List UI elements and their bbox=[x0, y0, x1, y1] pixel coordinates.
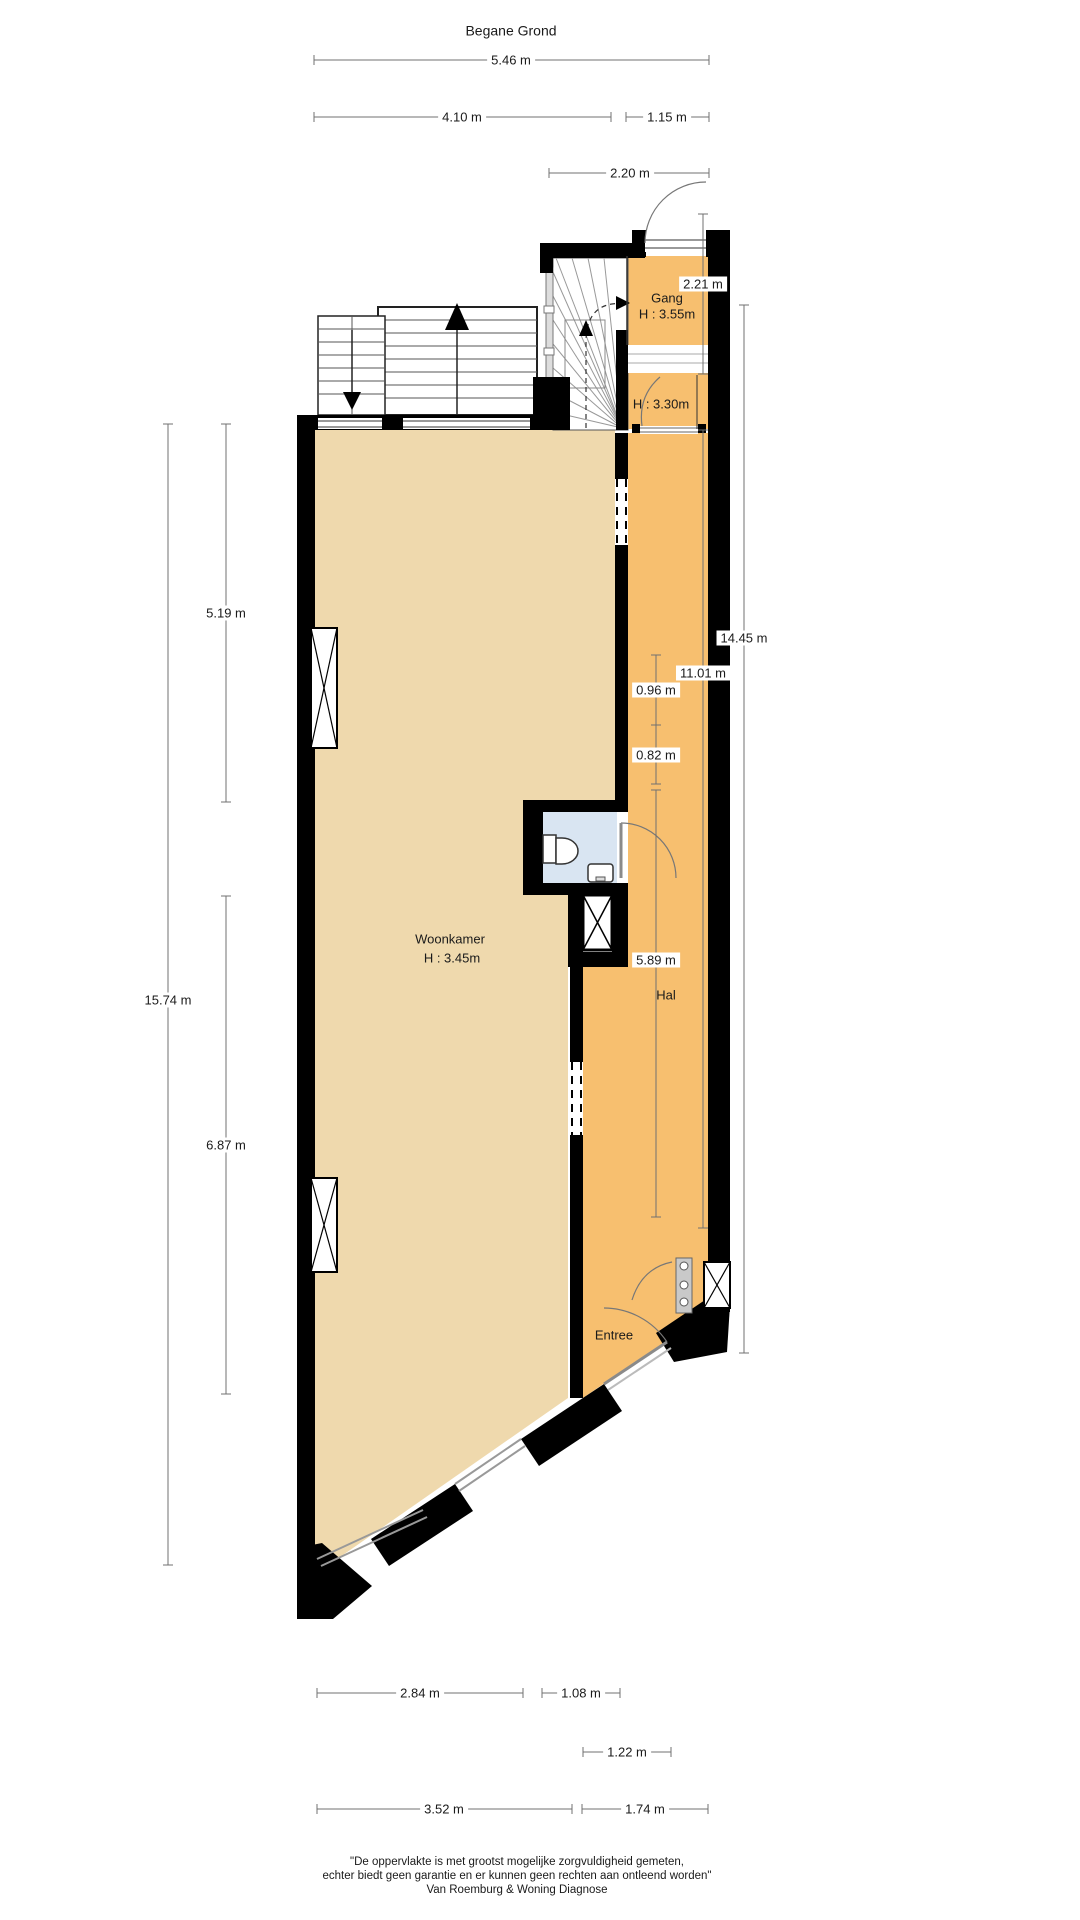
room-height-landing: H : 3.30m bbox=[633, 397, 689, 412]
window-cross-icon bbox=[704, 1262, 730, 1308]
floor-areas bbox=[310, 256, 708, 1578]
living-room-floor bbox=[310, 428, 615, 1578]
page-title: Begane Grond bbox=[465, 24, 556, 39]
dim-label: 11.01 m bbox=[676, 666, 730, 681]
shaft-icon bbox=[583, 895, 612, 950]
room-label-entree: Entree bbox=[595, 1328, 633, 1343]
floorplan-drawing bbox=[0, 0, 1080, 1920]
dim-label: 4.10 m bbox=[438, 110, 486, 125]
room-label-gang: Gang bbox=[651, 291, 683, 306]
dim-label: 1.08 m bbox=[557, 1686, 605, 1701]
dim-label: 15.74 m bbox=[141, 993, 196, 1008]
disclaimer-line-1: "De oppervlakte is met grootst mogelijke… bbox=[350, 1855, 684, 1869]
dim-label: 2.21 m bbox=[679, 277, 727, 292]
room-label-hal: Hal bbox=[656, 988, 676, 1003]
window-cross-icon bbox=[311, 628, 337, 748]
dim-label: 6.87 m bbox=[202, 1138, 250, 1153]
dim-label: 2.84 m bbox=[396, 1686, 444, 1701]
dim-label: 1.74 m bbox=[621, 1802, 669, 1817]
room-label-woonkamer: Woonkamer bbox=[415, 932, 485, 947]
window-cross-icon bbox=[311, 1178, 337, 1272]
dim-label: 5.19 m bbox=[202, 606, 250, 621]
dim-label: 14.45 m bbox=[717, 631, 772, 646]
dim-label: 0.82 m bbox=[632, 748, 680, 763]
dim-label: 5.46 m bbox=[487, 53, 535, 68]
dim-label: 1.22 m bbox=[603, 1745, 651, 1760]
toilet-cistern bbox=[543, 835, 556, 863]
dim-label: 1.15 m bbox=[643, 110, 691, 125]
street-door-arc bbox=[645, 182, 706, 243]
room-height-woonkamer: H : 3.45m bbox=[424, 951, 480, 966]
dim-label: 3.52 m bbox=[420, 1802, 468, 1817]
dim-label: 5.89 m bbox=[632, 953, 680, 968]
dim-label: 2.20 m bbox=[606, 166, 654, 181]
room-height-gang: H : 3.55m bbox=[639, 307, 695, 322]
floorplan-page: Begane Grond 5.46 m 4.10 m 1.15 m 2.20 m… bbox=[0, 0, 1080, 1920]
disclaimer-line-3: Van Roemburg & Woning Diagnose bbox=[426, 1883, 607, 1897]
dim-label: 0.96 m bbox=[632, 683, 680, 698]
disclaimer-line-2: echter biedt geen garantie en er kunnen … bbox=[323, 1869, 712, 1883]
